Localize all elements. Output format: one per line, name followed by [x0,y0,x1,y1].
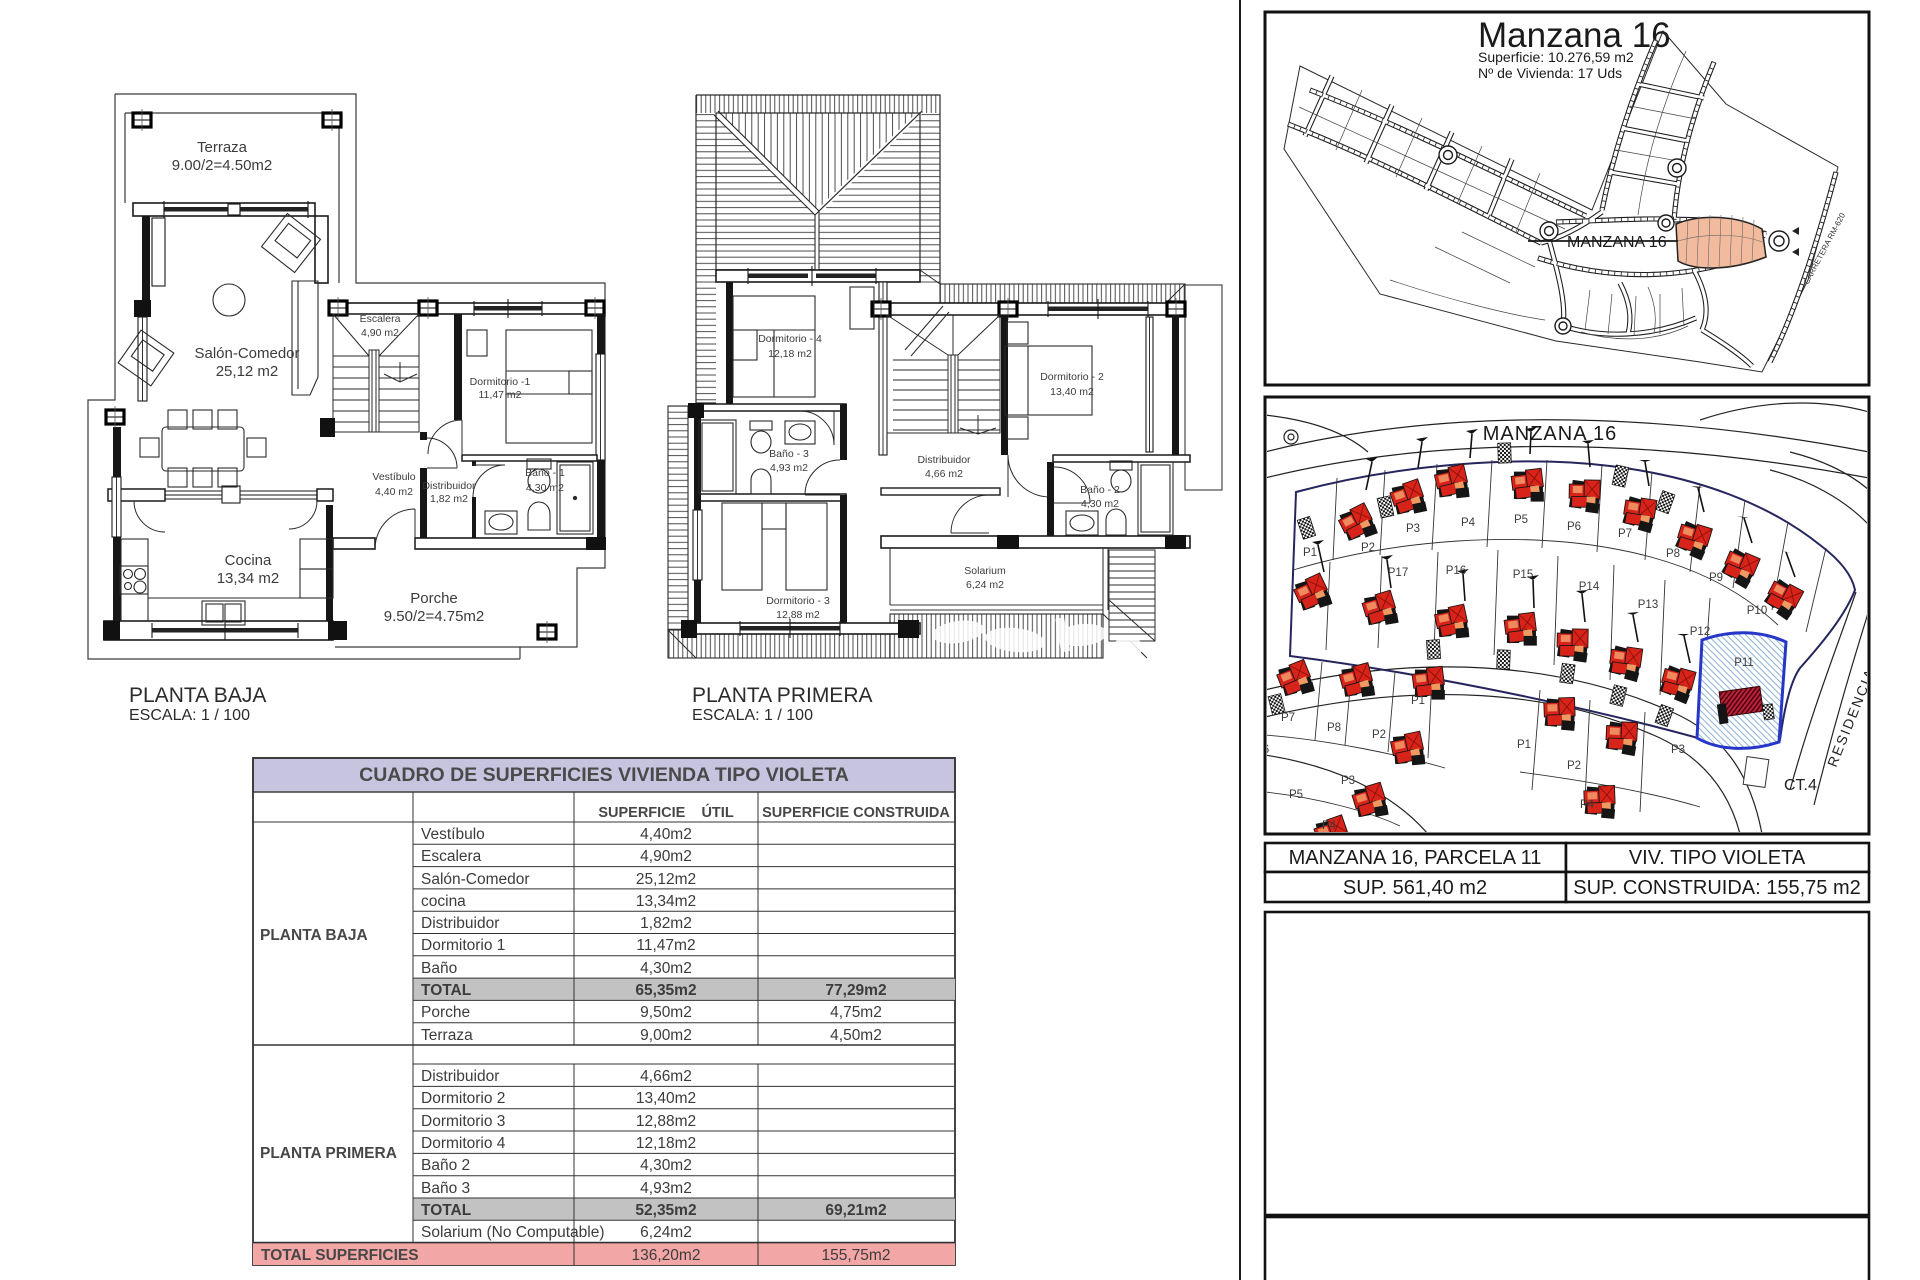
svg-text:P11: P11 [1734,657,1754,669]
svg-text:P7: P7 [1281,712,1295,724]
svg-text:P13: P13 [1638,599,1658,611]
svg-text:P10: P10 [1747,605,1767,617]
svg-text:136,20m2: 136,20m2 [632,1247,701,1264]
svg-text:Distribuidor: Distribuidor [421,915,499,932]
svg-text:MANZANA 16, PARCELA 11: MANZANA 16, PARCELA 11 [1289,847,1542,869]
svg-text:Salón-Comedor: Salón-Comedor [421,871,530,888]
svg-text:P4: P4 [1322,820,1337,832]
svg-text:4,40 m2: 4,40 m2 [375,486,413,498]
svg-text:P2: P2 [1361,542,1375,554]
svg-text:6,24 m2: 6,24 m2 [966,579,1004,591]
svg-text:PLANTA BAJA: PLANTA BAJA [260,927,368,944]
svg-text:12,18 m2: 12,18 m2 [768,348,812,360]
svg-text:P1: P1 [1303,547,1317,559]
svg-text:Terraza: Terraza [421,1027,473,1044]
svg-text:Dormitorio - 4: Dormitorio - 4 [758,333,822,345]
svg-text:MANZANA 16: MANZANA 16 [1567,234,1667,251]
svg-text:4,90 m2: 4,90 m2 [361,327,399,339]
svg-text:cocina: cocina [421,893,466,910]
svg-text:Dormitorio - 3: Dormitorio - 3 [766,595,830,607]
svg-text:P8: P8 [1666,548,1680,560]
svg-text:SUPERFICIE ÚTIL: SUPERFICIE ÚTIL [598,803,733,821]
svg-text:P1: P1 [1411,695,1425,707]
svg-text:P14: P14 [1579,581,1600,593]
svg-text:13,34 m2: 13,34 m2 [217,570,280,587]
svg-text:SUP. CONSTRUIDA: 155,75 m2: SUP. CONSTRUIDA: 155,75 m2 [1573,877,1861,899]
svg-text:Distribuidor: Distribuidor [421,1068,499,1085]
svg-text:P7: P7 [1618,528,1632,540]
svg-text:Dormitorio 3: Dormitorio 3 [421,1113,505,1130]
svg-text:P3: P3 [1406,523,1420,535]
svg-text:Distribuidor: Distribuidor [917,454,971,466]
svg-text:SUP. 561,40 m2: SUP. 561,40 m2 [1343,877,1487,899]
svg-text:4,30 m2: 4,30 m2 [526,482,564,494]
svg-text:TOTAL: TOTAL [421,982,471,999]
svg-text:9,50m2: 9,50m2 [640,1004,692,1021]
svg-text:P4: P4 [1580,799,1595,811]
svg-text:Superficie: 10.276,59 m2: Superficie: 10.276,59 m2 [1478,49,1634,65]
svg-text:Nº de Vivienda: 17 Uds: Nº de Vivienda: 17 Uds [1478,65,1622,81]
svg-text:Baño - 2: Baño - 2 [1080,484,1120,496]
svg-text:Solarium (No Computable): Solarium (No Computable) [421,1224,605,1241]
svg-text:Solarium: Solarium [964,565,1006,577]
svg-text:4,93m2: 4,93m2 [640,1180,692,1197]
svg-text:SUPERFICIE CONSTRUIDA: SUPERFICIE CONSTRUIDA [762,805,950,821]
svg-text:CUADRO DE SUPERFICIES VIVIEND: CUADRO DE SUPERFICIES VIVIENDA TIPO VIOL… [359,764,849,786]
svg-text:11,47m2: 11,47m2 [636,937,695,954]
svg-text:65,35m2: 65,35m2 [635,982,696,999]
svg-text:TOTAL: TOTAL [421,1202,471,1219]
svg-text:Porche: Porche [421,1004,470,1021]
svg-text:Dormitorio - 2: Dormitorio - 2 [1040,371,1104,383]
svg-text:Terraza: Terraza [197,139,248,156]
svg-text:69,21m2: 69,21m2 [825,1202,886,1219]
svg-text:P2: P2 [1567,760,1581,772]
svg-text:Vestíbulo: Vestíbulo [421,826,485,843]
svg-text:Porche: Porche [410,590,458,607]
svg-text:Dormitorio 4: Dormitorio 4 [421,1135,506,1152]
svg-text:9.00/2=4.50m2: 9.00/2=4.50m2 [172,157,273,174]
svg-text:TOTAL SUPERFICIES: TOTAL SUPERFICIES [261,1247,419,1264]
svg-text:4,66 m2: 4,66 m2 [925,468,963,480]
svg-text:1,82 m2: 1,82 m2 [430,493,468,505]
svg-text:Baño - 1: Baño - 1 [525,467,565,479]
svg-text:4,93 m2: 4,93 m2 [770,462,808,474]
svg-text:4,75m2: 4,75m2 [830,1004,882,1021]
svg-text:4,30 m2: 4,30 m2 [1081,498,1119,510]
svg-text:ESCALA: 1 / 100: ESCALA: 1 / 100 [692,707,813,724]
svg-text:77,29m2: 77,29m2 [825,982,886,999]
svg-text:Vestíbulo: Vestíbulo [372,471,415,483]
svg-text:4,40m2: 4,40m2 [640,826,692,843]
svg-text:VIV. TIPO VIOLETA: VIV. TIPO VIOLETA [1629,847,1806,869]
svg-text:P16: P16 [1446,565,1466,577]
svg-text:13,40m2: 13,40m2 [636,1090,696,1107]
svg-text:P4: P4 [1461,517,1476,529]
svg-text:Baño 2: Baño 2 [421,1157,470,1174]
svg-text:Cocina: Cocina [225,552,272,569]
svg-text:4,30m2: 4,30m2 [640,960,692,977]
svg-text:P5: P5 [1514,514,1528,526]
svg-text:Salón-Comedor: Salón-Comedor [194,345,299,362]
svg-text:Escalera: Escalera [360,313,401,325]
svg-text:4,30m2: 4,30m2 [640,1157,692,1174]
svg-text:P9: P9 [1709,572,1723,584]
svg-text:Baño: Baño [421,960,457,977]
svg-text:P17: P17 [1388,567,1408,579]
svg-text:4,90m2: 4,90m2 [640,848,692,865]
svg-text:4,50m2: 4,50m2 [830,1027,882,1044]
svg-text:6,24m2: 6,24m2 [640,1224,692,1241]
svg-text:P3: P3 [1341,775,1355,787]
svg-text:4,66m2: 4,66m2 [640,1068,692,1085]
svg-text:Escalera: Escalera [421,848,482,865]
svg-text:Dormitorio 1: Dormitorio 1 [421,937,505,954]
svg-text:P8: P8 [1327,722,1341,734]
svg-text:9,00m2: 9,00m2 [640,1027,692,1044]
svg-text:P12: P12 [1690,626,1710,638]
svg-text:MANZANA 16: MANZANA 16 [1483,423,1617,445]
svg-text:P3: P3 [1671,744,1685,756]
svg-text:P15: P15 [1513,569,1533,581]
svg-text:52,35m2: 52,35m2 [635,1202,696,1219]
svg-text:PLANTA PRIMERA: PLANTA PRIMERA [260,1145,397,1162]
svg-text:Baño - 3: Baño - 3 [769,448,809,460]
svg-text:P5: P5 [1289,789,1303,801]
svg-text:P2: P2 [1372,729,1386,741]
svg-text:Distribuidor: Distribuidor [422,480,476,492]
svg-text:12,18m2: 12,18m2 [636,1135,696,1152]
svg-text:CT.4: CT.4 [1784,777,1817,794]
svg-text:12,88m2: 12,88m2 [636,1113,696,1130]
svg-text:13,40 m2: 13,40 m2 [1050,386,1094,398]
svg-text:P6: P6 [1567,521,1581,533]
svg-text:9.50/2=4.75m2: 9.50/2=4.75m2 [384,608,485,625]
svg-text:Baño 3: Baño 3 [421,1180,470,1197]
svg-text:PLANTA BAJA: PLANTA BAJA [129,684,266,707]
svg-text:13,34m2: 13,34m2 [636,893,696,910]
svg-text:25,12 m2: 25,12 m2 [216,363,279,380]
svg-text:11,47 m2: 11,47 m2 [479,389,522,401]
svg-text:1,82m2: 1,82m2 [640,915,692,932]
svg-text:ESCALA: 1 / 100: ESCALA: 1 / 100 [129,707,250,724]
svg-text:12,88 m2: 12,88 m2 [776,609,820,621]
svg-text:155,75m2: 155,75m2 [822,1247,891,1264]
svg-text:PLANTA PRIMERA: PLANTA PRIMERA [692,684,873,707]
svg-text:Dormitorio -1: Dormitorio -1 [470,376,531,388]
svg-text:P1: P1 [1517,739,1531,751]
svg-text:Dormitorio 2: Dormitorio 2 [421,1090,505,1107]
svg-text:25,12m2: 25,12m2 [636,871,696,888]
